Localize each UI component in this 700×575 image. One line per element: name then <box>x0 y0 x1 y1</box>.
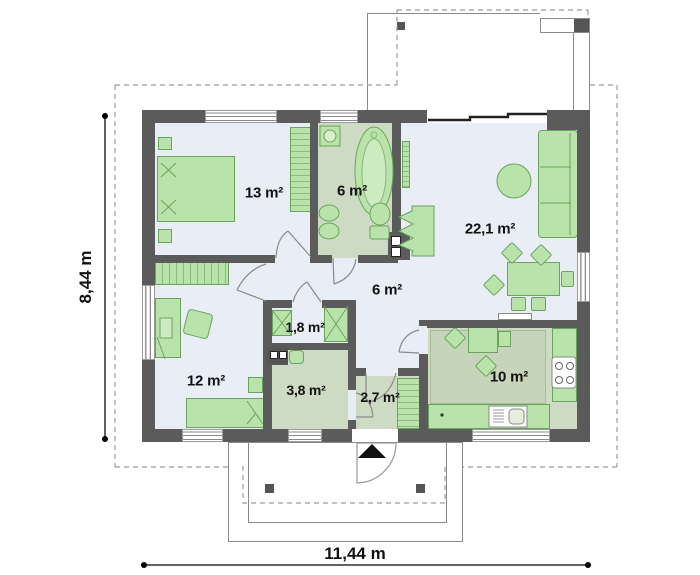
kitchen-table <box>468 327 498 353</box>
wall-segment <box>547 110 590 130</box>
room-label-hall: 6 m² <box>372 282 402 299</box>
window <box>320 110 358 123</box>
wall-segment <box>419 354 428 429</box>
room-label-living-room: 22,1 m² <box>465 221 515 238</box>
wardrobe <box>155 260 229 285</box>
terrace-column <box>574 19 589 32</box>
wall-segment <box>398 368 419 376</box>
kitchen-side-table <box>498 331 511 347</box>
terrace-edge <box>573 33 574 110</box>
nightstand <box>158 137 172 150</box>
dining-chair <box>531 297 546 311</box>
room-label-closet: 1,8 m² <box>285 319 324 335</box>
entrance-door-opening <box>352 429 398 442</box>
desk <box>155 298 181 358</box>
terrace-edge <box>367 13 368 110</box>
dimension-label-width: 11,44 m <box>324 544 385 564</box>
room-label-bathroom: 6 m² <box>337 183 367 200</box>
vestibule-wardrobe <box>397 378 421 429</box>
wall-segment <box>348 300 356 390</box>
nightstand <box>248 377 263 393</box>
washer <box>270 351 278 359</box>
closet-cabinet <box>324 306 348 342</box>
terrace-column <box>397 22 405 30</box>
window <box>205 110 277 123</box>
wall-segment <box>348 420 356 429</box>
wall-segment <box>263 300 292 308</box>
terrace-glazing <box>428 114 547 120</box>
radiator <box>402 141 410 188</box>
wall-segment <box>310 123 318 263</box>
room-label-bedroom-main: 13 m² <box>245 185 283 202</box>
room-label-bedroom-second: 12 m² <box>187 373 225 390</box>
dining-chair <box>511 297 526 311</box>
washer <box>279 351 287 359</box>
wall-segment <box>155 255 275 263</box>
terrace-edge <box>589 33 590 110</box>
room-label-vestibule: 2,7 m² <box>360 389 399 405</box>
utility-basin <box>289 350 304 364</box>
single-bed <box>186 398 266 428</box>
dimension-line-height <box>102 113 108 442</box>
wall-segment <box>356 368 366 376</box>
kitchen-counter-bottom <box>428 404 550 429</box>
sofa <box>538 130 578 238</box>
kitchen-counter-right <box>552 328 577 402</box>
window <box>288 429 322 442</box>
room-label-utility: 3,8 m² <box>286 382 325 398</box>
window <box>142 285 155 360</box>
window <box>577 252 590 302</box>
boiler <box>391 247 401 257</box>
room-label-kitchen: 10 m² <box>490 369 528 386</box>
dining-chair <box>561 271 574 287</box>
wall-segment <box>318 255 332 263</box>
wall-segment <box>142 110 155 442</box>
porch-inner <box>248 442 447 523</box>
dining-table <box>507 262 560 296</box>
double-bed <box>157 156 235 222</box>
dimension-label-height: 8,44 m <box>76 251 96 304</box>
nightstand <box>158 229 172 243</box>
window <box>182 429 223 442</box>
wall-segment <box>392 123 401 235</box>
wall-segment <box>142 110 427 123</box>
wardrobe <box>290 127 312 212</box>
floor-plan: 13 m² 6 m² 22,1 m² 6 m² 1,8 m² 12 m² 3,8… <box>0 0 700 575</box>
window <box>472 429 550 442</box>
boiler <box>391 236 401 246</box>
porch-column <box>265 484 274 493</box>
shelf <box>498 313 532 320</box>
wall-segment <box>427 320 577 328</box>
terrace-edge <box>367 13 540 14</box>
porch-column <box>416 484 425 493</box>
